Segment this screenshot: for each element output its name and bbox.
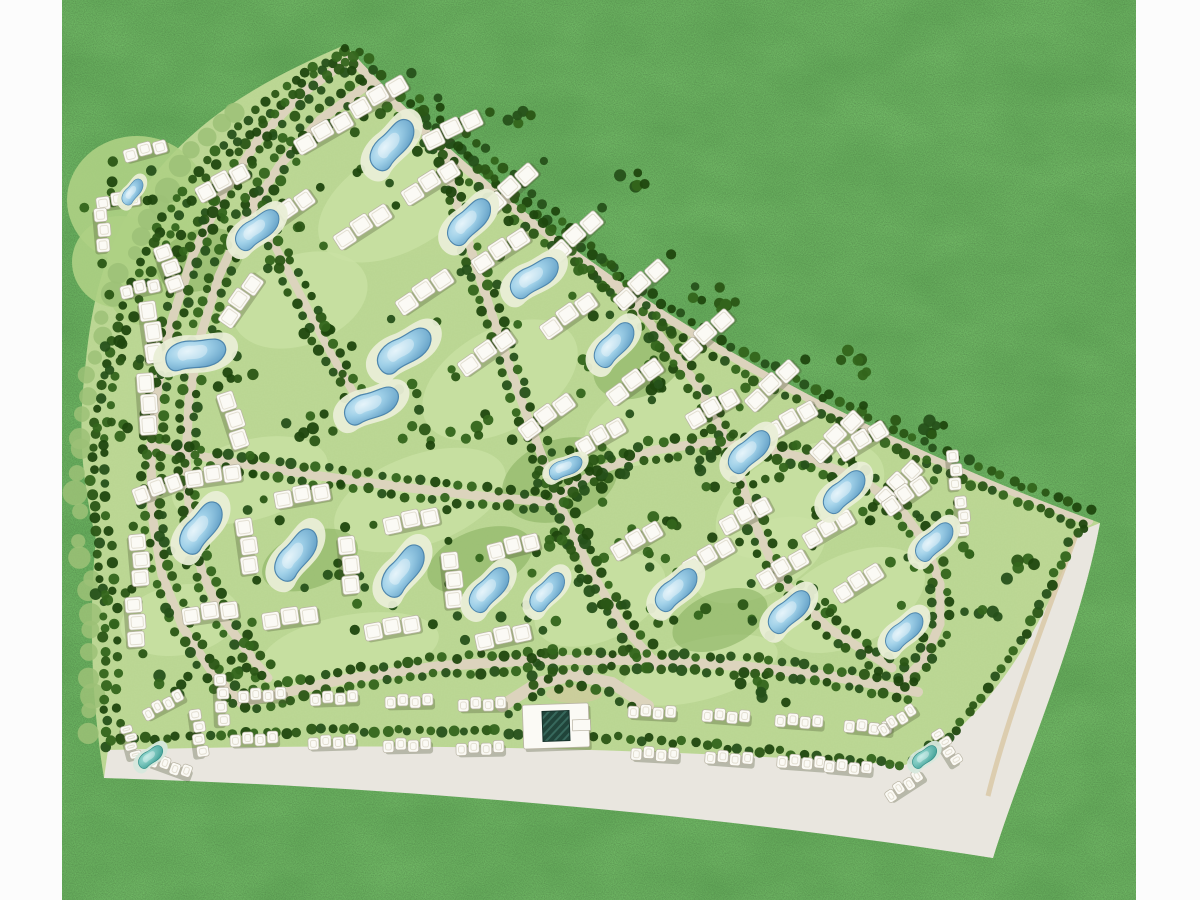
tree (209, 659, 220, 670)
tree (294, 432, 304, 442)
tree (198, 216, 207, 225)
building-module (308, 738, 319, 750)
tree (416, 494, 425, 503)
building-module (655, 749, 666, 762)
tree (305, 115, 313, 123)
tree (101, 511, 110, 520)
tree (220, 215, 228, 223)
tree (669, 739, 678, 748)
tree (676, 308, 685, 317)
tree (105, 365, 114, 374)
tree (943, 631, 951, 639)
shrub (108, 263, 129, 284)
tree (566, 545, 576, 555)
tree (876, 756, 886, 766)
tree (254, 186, 264, 196)
tree (211, 577, 221, 587)
tree (691, 282, 700, 291)
tree (154, 679, 165, 690)
tree (415, 94, 424, 103)
tree (210, 257, 219, 266)
tree (688, 318, 696, 326)
tree (558, 217, 566, 225)
tree (868, 502, 878, 512)
tree (604, 451, 614, 461)
tree (260, 97, 270, 107)
tree (116, 313, 124, 321)
tree (702, 668, 711, 677)
screenshot-root (0, 0, 1200, 900)
building-module (717, 750, 729, 763)
tree (227, 130, 237, 140)
tree (457, 268, 465, 276)
tree (306, 724, 317, 735)
tree (735, 678, 747, 690)
tree (349, 484, 358, 493)
tree (211, 159, 222, 170)
tree (90, 501, 101, 512)
tree (276, 145, 286, 155)
tree (179, 599, 187, 607)
tree (822, 632, 830, 640)
tree (282, 676, 293, 687)
tree (394, 660, 402, 668)
tree (481, 144, 490, 153)
tree (180, 373, 189, 382)
tree (587, 241, 596, 250)
tree (776, 746, 784, 754)
tree (679, 333, 688, 342)
tree (600, 598, 611, 609)
tree (801, 460, 810, 469)
tree (551, 616, 562, 627)
tree (748, 616, 758, 626)
tree (978, 605, 988, 615)
building-module (856, 719, 868, 732)
tree (416, 726, 424, 734)
tree (183, 297, 194, 308)
tree (629, 648, 640, 659)
tree (623, 610, 632, 619)
building-module (395, 738, 406, 750)
tree (761, 359, 770, 368)
tree (268, 185, 279, 196)
tree (163, 302, 172, 311)
tree (352, 469, 361, 478)
tree (937, 639, 945, 647)
tree (376, 70, 387, 81)
building-module (214, 674, 226, 686)
tree (286, 150, 295, 159)
building-module (836, 759, 848, 772)
tree (315, 104, 324, 113)
tree (202, 673, 212, 683)
tree (453, 481, 462, 490)
tree (103, 716, 113, 726)
tree (419, 424, 431, 436)
tree (697, 296, 706, 305)
tree (570, 507, 581, 518)
tree (206, 731, 215, 740)
tree (978, 481, 988, 491)
tree (916, 514, 924, 522)
tree (1022, 629, 1032, 639)
shrub (88, 350, 102, 364)
building-module (950, 463, 963, 476)
tree (559, 497, 569, 507)
tree (233, 137, 242, 146)
tree (930, 476, 938, 484)
building-module (119, 284, 134, 299)
tree (307, 292, 315, 300)
tree (527, 653, 537, 663)
tree (932, 421, 941, 430)
building-module (640, 704, 651, 717)
tree (141, 461, 150, 470)
tree (926, 643, 936, 653)
tree (1072, 503, 1082, 513)
tree (640, 179, 650, 189)
tree (108, 383, 117, 392)
tree (329, 724, 338, 733)
tree (281, 728, 292, 739)
shrub (80, 643, 98, 661)
tree (661, 554, 670, 563)
tree (198, 228, 207, 237)
tree (157, 212, 167, 222)
tree (599, 553, 609, 563)
tree (597, 664, 607, 674)
tree (467, 482, 477, 492)
tree (819, 394, 827, 402)
tree (482, 482, 492, 492)
building-module (238, 691, 249, 703)
tree (864, 645, 873, 654)
tree (212, 448, 222, 458)
tree (664, 454, 673, 463)
tree (691, 738, 701, 748)
tree (944, 610, 954, 620)
building-module (483, 699, 494, 711)
building-module (397, 694, 408, 706)
tree (186, 196, 196, 206)
shrub (79, 387, 97, 405)
tree (528, 692, 537, 701)
tree (310, 461, 320, 471)
tree (754, 652, 765, 663)
tree (750, 352, 761, 363)
tree (101, 647, 111, 657)
left-white-margin (0, 0, 62, 900)
building-module (420, 737, 431, 749)
tree (702, 482, 711, 491)
building-module (347, 690, 358, 702)
tree (465, 650, 474, 659)
tree (302, 281, 310, 289)
tree (183, 672, 192, 681)
building-module (222, 464, 242, 483)
tree (586, 265, 595, 274)
shrub (78, 366, 95, 383)
building-module (861, 761, 873, 774)
tree (298, 690, 309, 701)
tree (958, 542, 969, 553)
tree (336, 480, 345, 489)
tree (319, 321, 330, 332)
tree (299, 463, 308, 472)
building-module (495, 696, 506, 708)
tree (576, 681, 587, 692)
tree (292, 299, 303, 310)
tree (1017, 483, 1025, 491)
tree (476, 306, 487, 317)
tree (162, 382, 171, 391)
tree (278, 277, 287, 286)
tree (657, 320, 668, 331)
tree (180, 637, 191, 648)
tree (446, 187, 457, 198)
tree (495, 487, 503, 495)
tree (136, 258, 145, 267)
tree (823, 678, 832, 687)
tree (489, 666, 500, 677)
tree (545, 535, 555, 545)
tree (823, 663, 834, 674)
tree (167, 571, 177, 581)
tree (855, 684, 864, 693)
tree (102, 595, 113, 606)
tree (1012, 562, 1024, 574)
tree (322, 70, 332, 80)
tree (328, 426, 337, 435)
tree (607, 618, 618, 629)
building-module (273, 490, 293, 510)
tree (545, 503, 554, 512)
tree (107, 541, 117, 551)
tree (283, 82, 292, 91)
tree (716, 654, 725, 663)
tree (584, 647, 593, 656)
tree (100, 706, 108, 714)
tree (1073, 528, 1083, 538)
tree (170, 627, 179, 636)
tree (179, 308, 188, 317)
tree (406, 672, 415, 681)
tree (252, 576, 261, 585)
tree (406, 68, 416, 78)
tree (292, 158, 300, 166)
building-module (631, 748, 642, 761)
tree (99, 613, 107, 621)
tree (703, 740, 713, 750)
tree (499, 316, 510, 327)
building-module (512, 623, 533, 643)
building-module (218, 714, 230, 726)
right-white-margin (1136, 0, 1200, 900)
tree (721, 421, 730, 430)
building-module (458, 699, 469, 711)
tree (107, 557, 118, 568)
tree (512, 111, 522, 121)
tree (174, 210, 184, 220)
tree (974, 462, 983, 471)
tree (618, 645, 629, 656)
tree (176, 230, 186, 240)
tree (548, 448, 556, 456)
building-module (668, 748, 679, 761)
tree (453, 141, 463, 151)
tree (657, 736, 667, 746)
tree (300, 584, 309, 593)
tree (575, 257, 583, 265)
tree (449, 726, 460, 737)
tree (593, 275, 601, 283)
tree (248, 160, 257, 169)
tree (667, 519, 677, 529)
tree (112, 603, 122, 613)
tree (693, 391, 702, 400)
tree (194, 583, 203, 592)
tree (845, 683, 853, 691)
tree (231, 209, 241, 219)
tree (452, 654, 462, 664)
tree (187, 232, 196, 241)
building-module (400, 509, 421, 529)
tree (927, 430, 937, 440)
tree (796, 674, 806, 684)
tree (558, 665, 567, 674)
tree (273, 472, 284, 483)
tree (576, 389, 586, 399)
tree (567, 487, 578, 498)
building-module (503, 535, 523, 555)
building-module (823, 760, 835, 773)
tree (98, 440, 108, 450)
tree (307, 422, 319, 434)
building-module (775, 715, 787, 728)
tree (520, 490, 529, 499)
tree (511, 666, 521, 676)
tree (565, 680, 573, 688)
tree (537, 688, 545, 696)
tree (215, 302, 225, 312)
tree (738, 347, 749, 358)
tree (94, 538, 105, 549)
building-module (481, 743, 492, 755)
building-module (275, 687, 286, 699)
building-module (946, 450, 959, 463)
tree (158, 422, 168, 432)
tree (894, 676, 904, 686)
tree (538, 218, 549, 229)
tree (204, 273, 214, 283)
tree (426, 727, 435, 736)
tree (220, 199, 230, 209)
tree (648, 396, 656, 404)
tree (181, 459, 190, 468)
tree (369, 521, 377, 529)
tree (706, 424, 716, 434)
tree (355, 74, 365, 84)
tree (281, 98, 290, 107)
tree (456, 192, 466, 202)
building-module (184, 469, 204, 488)
tree (460, 635, 470, 645)
tree (285, 458, 296, 469)
tree (688, 293, 699, 304)
tree (596, 253, 607, 264)
tree (140, 732, 151, 743)
tree (99, 669, 109, 679)
tree (341, 44, 349, 52)
tree (210, 146, 221, 157)
tree (633, 169, 642, 178)
building-module (217, 687, 229, 699)
building-module (96, 238, 110, 253)
tree (304, 94, 313, 103)
building-module (787, 713, 799, 726)
tree (122, 423, 133, 434)
tree (836, 355, 846, 365)
tree (751, 538, 759, 546)
tree (189, 270, 198, 279)
tree (191, 258, 202, 269)
tree (93, 405, 101, 413)
shrub (94, 311, 108, 325)
tree (747, 579, 756, 588)
tree (938, 556, 948, 566)
tree (527, 670, 538, 681)
tree (478, 499, 487, 508)
building-module (215, 701, 227, 713)
tree (654, 380, 663, 389)
tree (492, 502, 500, 510)
tree (898, 522, 908, 532)
tree (831, 682, 840, 691)
tree (702, 384, 713, 395)
tree (88, 452, 98, 462)
tree (192, 390, 200, 398)
tree (104, 526, 114, 536)
tree (548, 667, 558, 677)
building-module (470, 697, 481, 709)
building-module (146, 279, 161, 294)
tree (192, 632, 201, 641)
tree (430, 477, 440, 487)
tree (153, 580, 162, 589)
tree (490, 174, 498, 182)
tree (475, 668, 486, 679)
tree (452, 499, 462, 509)
tree (842, 345, 854, 357)
tree (307, 337, 316, 346)
tree (601, 734, 611, 744)
tree (298, 311, 307, 320)
tree (925, 584, 935, 594)
tree (687, 433, 697, 443)
tree (338, 466, 346, 474)
tree (379, 662, 388, 671)
tree (231, 667, 243, 679)
tree (700, 603, 711, 614)
tree (244, 116, 254, 126)
tree (193, 661, 201, 669)
tree (726, 652, 735, 661)
building-module (267, 731, 278, 743)
tree (749, 480, 757, 488)
tree (899, 448, 910, 459)
tree (867, 689, 876, 698)
